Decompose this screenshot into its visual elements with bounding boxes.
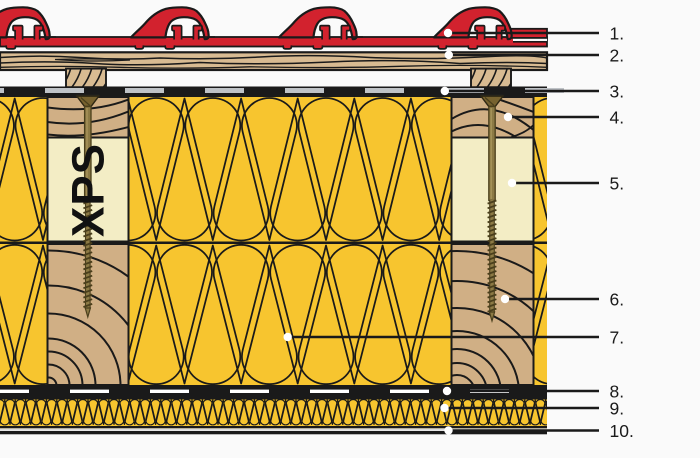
svg-text:2.: 2. [610,45,625,65]
svg-text:XPS: XPS [63,143,114,237]
svg-text:10.: 10. [610,421,634,441]
svg-text:5.: 5. [610,173,625,193]
svg-text:3.: 3. [610,81,625,101]
svg-text:9.: 9. [610,398,625,418]
svg-text:4.: 4. [610,107,625,127]
svg-text:7.: 7. [610,327,625,347]
svg-text:6.: 6. [610,289,625,309]
svg-text:1.: 1. [610,23,625,43]
